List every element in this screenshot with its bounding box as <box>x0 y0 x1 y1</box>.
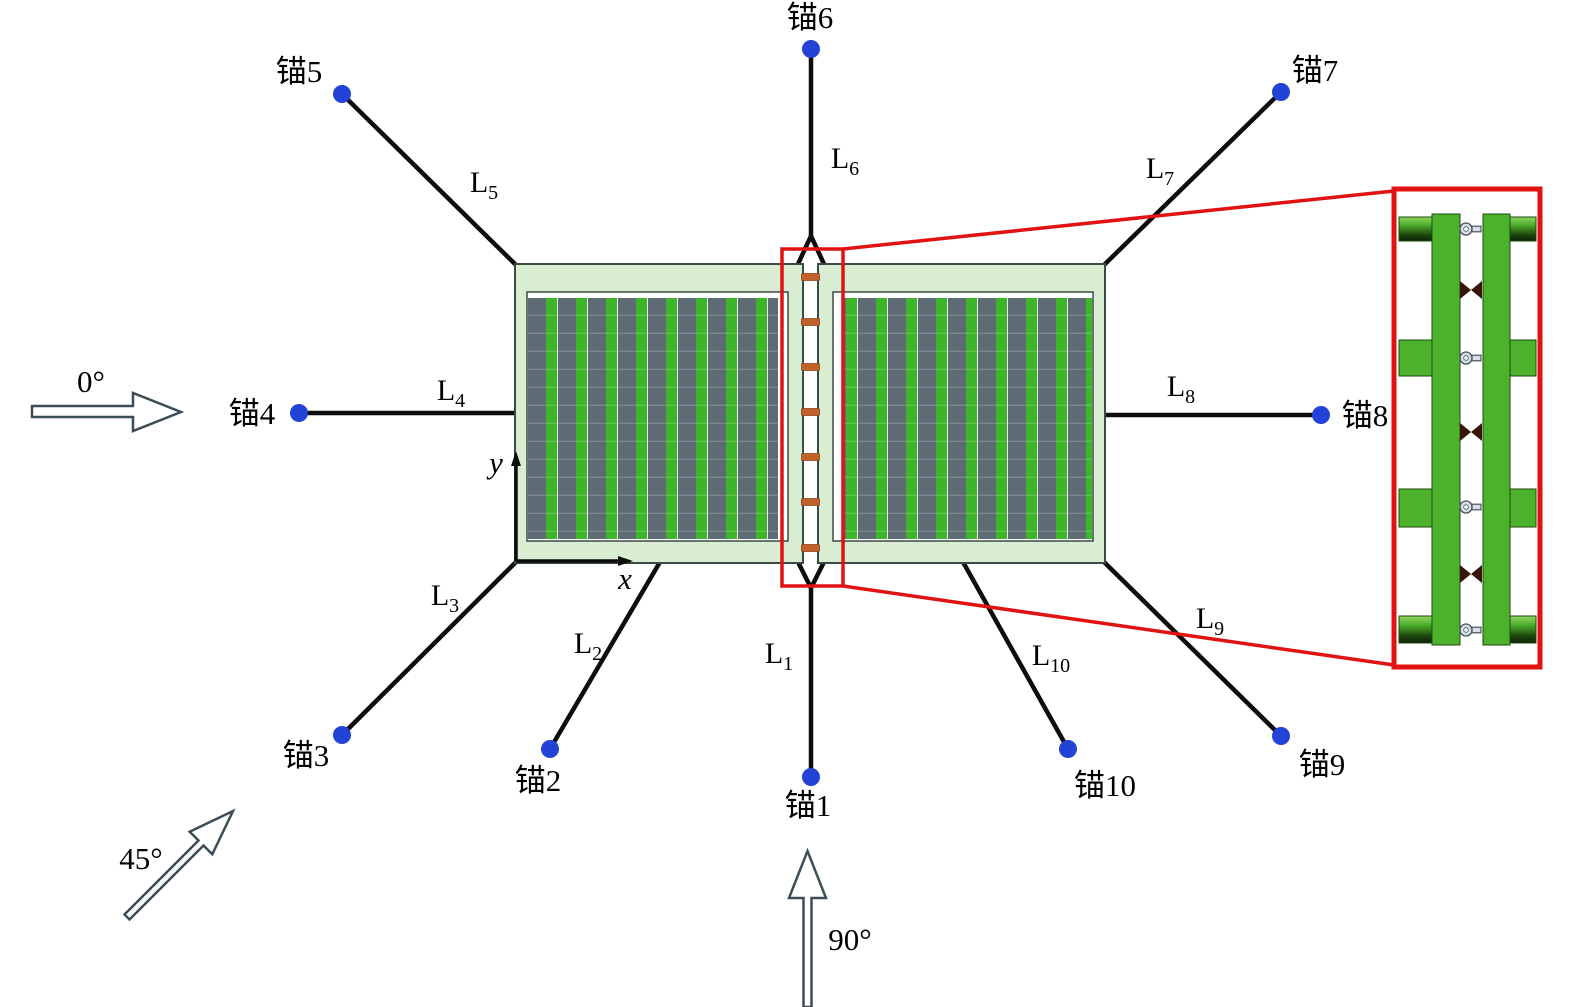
anchor-label-8: 锚8 <box>1342 398 1389 433</box>
hinge-connector-bar <box>802 409 820 416</box>
solar-panel-array-right <box>843 298 1092 539</box>
mooring-line-5 <box>342 94 516 265</box>
anchor-label-10: 锚10 <box>1074 768 1136 803</box>
line-label-9: L9 <box>1196 602 1224 640</box>
hinge-channel <box>802 274 820 552</box>
detail-view-background <box>1394 189 1540 667</box>
mooring-diagram: y x <box>0 0 1575 1007</box>
anchor-label-2: 锚2 <box>515 763 562 798</box>
detail-vertical-beam-left <box>1432 214 1460 645</box>
line-label-2: L2 <box>574 627 602 665</box>
line-label-8: L8 <box>1167 370 1195 408</box>
anchor-dot-6 <box>802 40 820 58</box>
line-label-4: L4 <box>437 374 465 412</box>
anchor-dot-1 <box>802 768 820 786</box>
direction-label-90deg: 90° <box>828 922 871 957</box>
anchor-dot-7 <box>1272 83 1290 101</box>
figure-canvas: y x <box>0 0 1575 1007</box>
detail-cylinder-top-right <box>1510 217 1536 241</box>
line-label-5: L5 <box>470 166 498 204</box>
direction-arrow-0deg-icon <box>32 393 181 431</box>
zoom-callout-line-top <box>843 191 1394 249</box>
anchor-dot-9 <box>1272 727 1290 745</box>
line-label-1: L1 <box>765 637 793 675</box>
hinge-connector-bar <box>802 499 820 506</box>
anchor-dot-8 <box>1312 406 1330 424</box>
anchor-dot-5 <box>333 85 351 103</box>
anchor-label-1: 锚1 <box>785 788 832 823</box>
mooring-line-7 <box>1104 92 1281 265</box>
zoom-callout-line-bottom <box>843 586 1394 665</box>
y-axis-label: y <box>486 445 503 480</box>
hinge-connector-bar <box>802 454 820 461</box>
detail-vertical-beam-right <box>1483 214 1510 645</box>
line-label-3: L3 <box>431 579 459 617</box>
anchor-dot-2 <box>541 740 559 758</box>
hinge-connector-bar <box>802 364 820 371</box>
hinge-connector-bar <box>802 274 820 281</box>
detail-crossbeam-upper-right <box>1510 340 1536 376</box>
detail-cylinder-bottom-right <box>1510 616 1536 643</box>
solar-panel-array-left <box>528 298 778 539</box>
anchor-dot-10 <box>1059 740 1077 758</box>
detail-view <box>1394 189 1540 667</box>
hinge-connector-bar <box>802 319 820 326</box>
anchor-dot-3 <box>333 726 351 744</box>
anchor-label-7: 锚7 <box>1292 53 1339 88</box>
anchor-label-3: 锚3 <box>283 738 330 773</box>
direction-arrow-90deg-icon <box>789 851 826 1007</box>
line-label-10: L10 <box>1032 639 1070 677</box>
hinge-connector-bar <box>802 545 820 552</box>
detail-crossbeam-lower-right <box>1510 489 1536 527</box>
detail-cylinder-bottom-left <box>1399 616 1432 643</box>
line-label-6: L6 <box>831 142 859 180</box>
anchor-label-4: 锚4 <box>229 396 276 431</box>
anchor-label-5: 锚5 <box>276 54 323 89</box>
mooring-line-1-bridle <box>798 562 824 588</box>
detail-cylinder-top-left <box>1399 217 1432 241</box>
mooring-line-9 <box>1104 562 1281 736</box>
x-axis-label: x <box>617 561 632 596</box>
direction-label-0deg: 0° <box>77 364 105 399</box>
direction-label-45deg: 45° <box>119 841 162 876</box>
mooring-line-3 <box>342 562 516 735</box>
anchor-label-6: 锚6 <box>787 0 834 35</box>
mooring-line-2 <box>550 562 660 749</box>
anchor-dot-4 <box>290 404 308 422</box>
detail-crossbeam-upper-left <box>1399 340 1432 376</box>
anchor-label-9: 锚9 <box>1299 747 1346 782</box>
line-label-7: L7 <box>1146 152 1174 190</box>
detail-crossbeam-lower-left <box>1399 489 1432 527</box>
